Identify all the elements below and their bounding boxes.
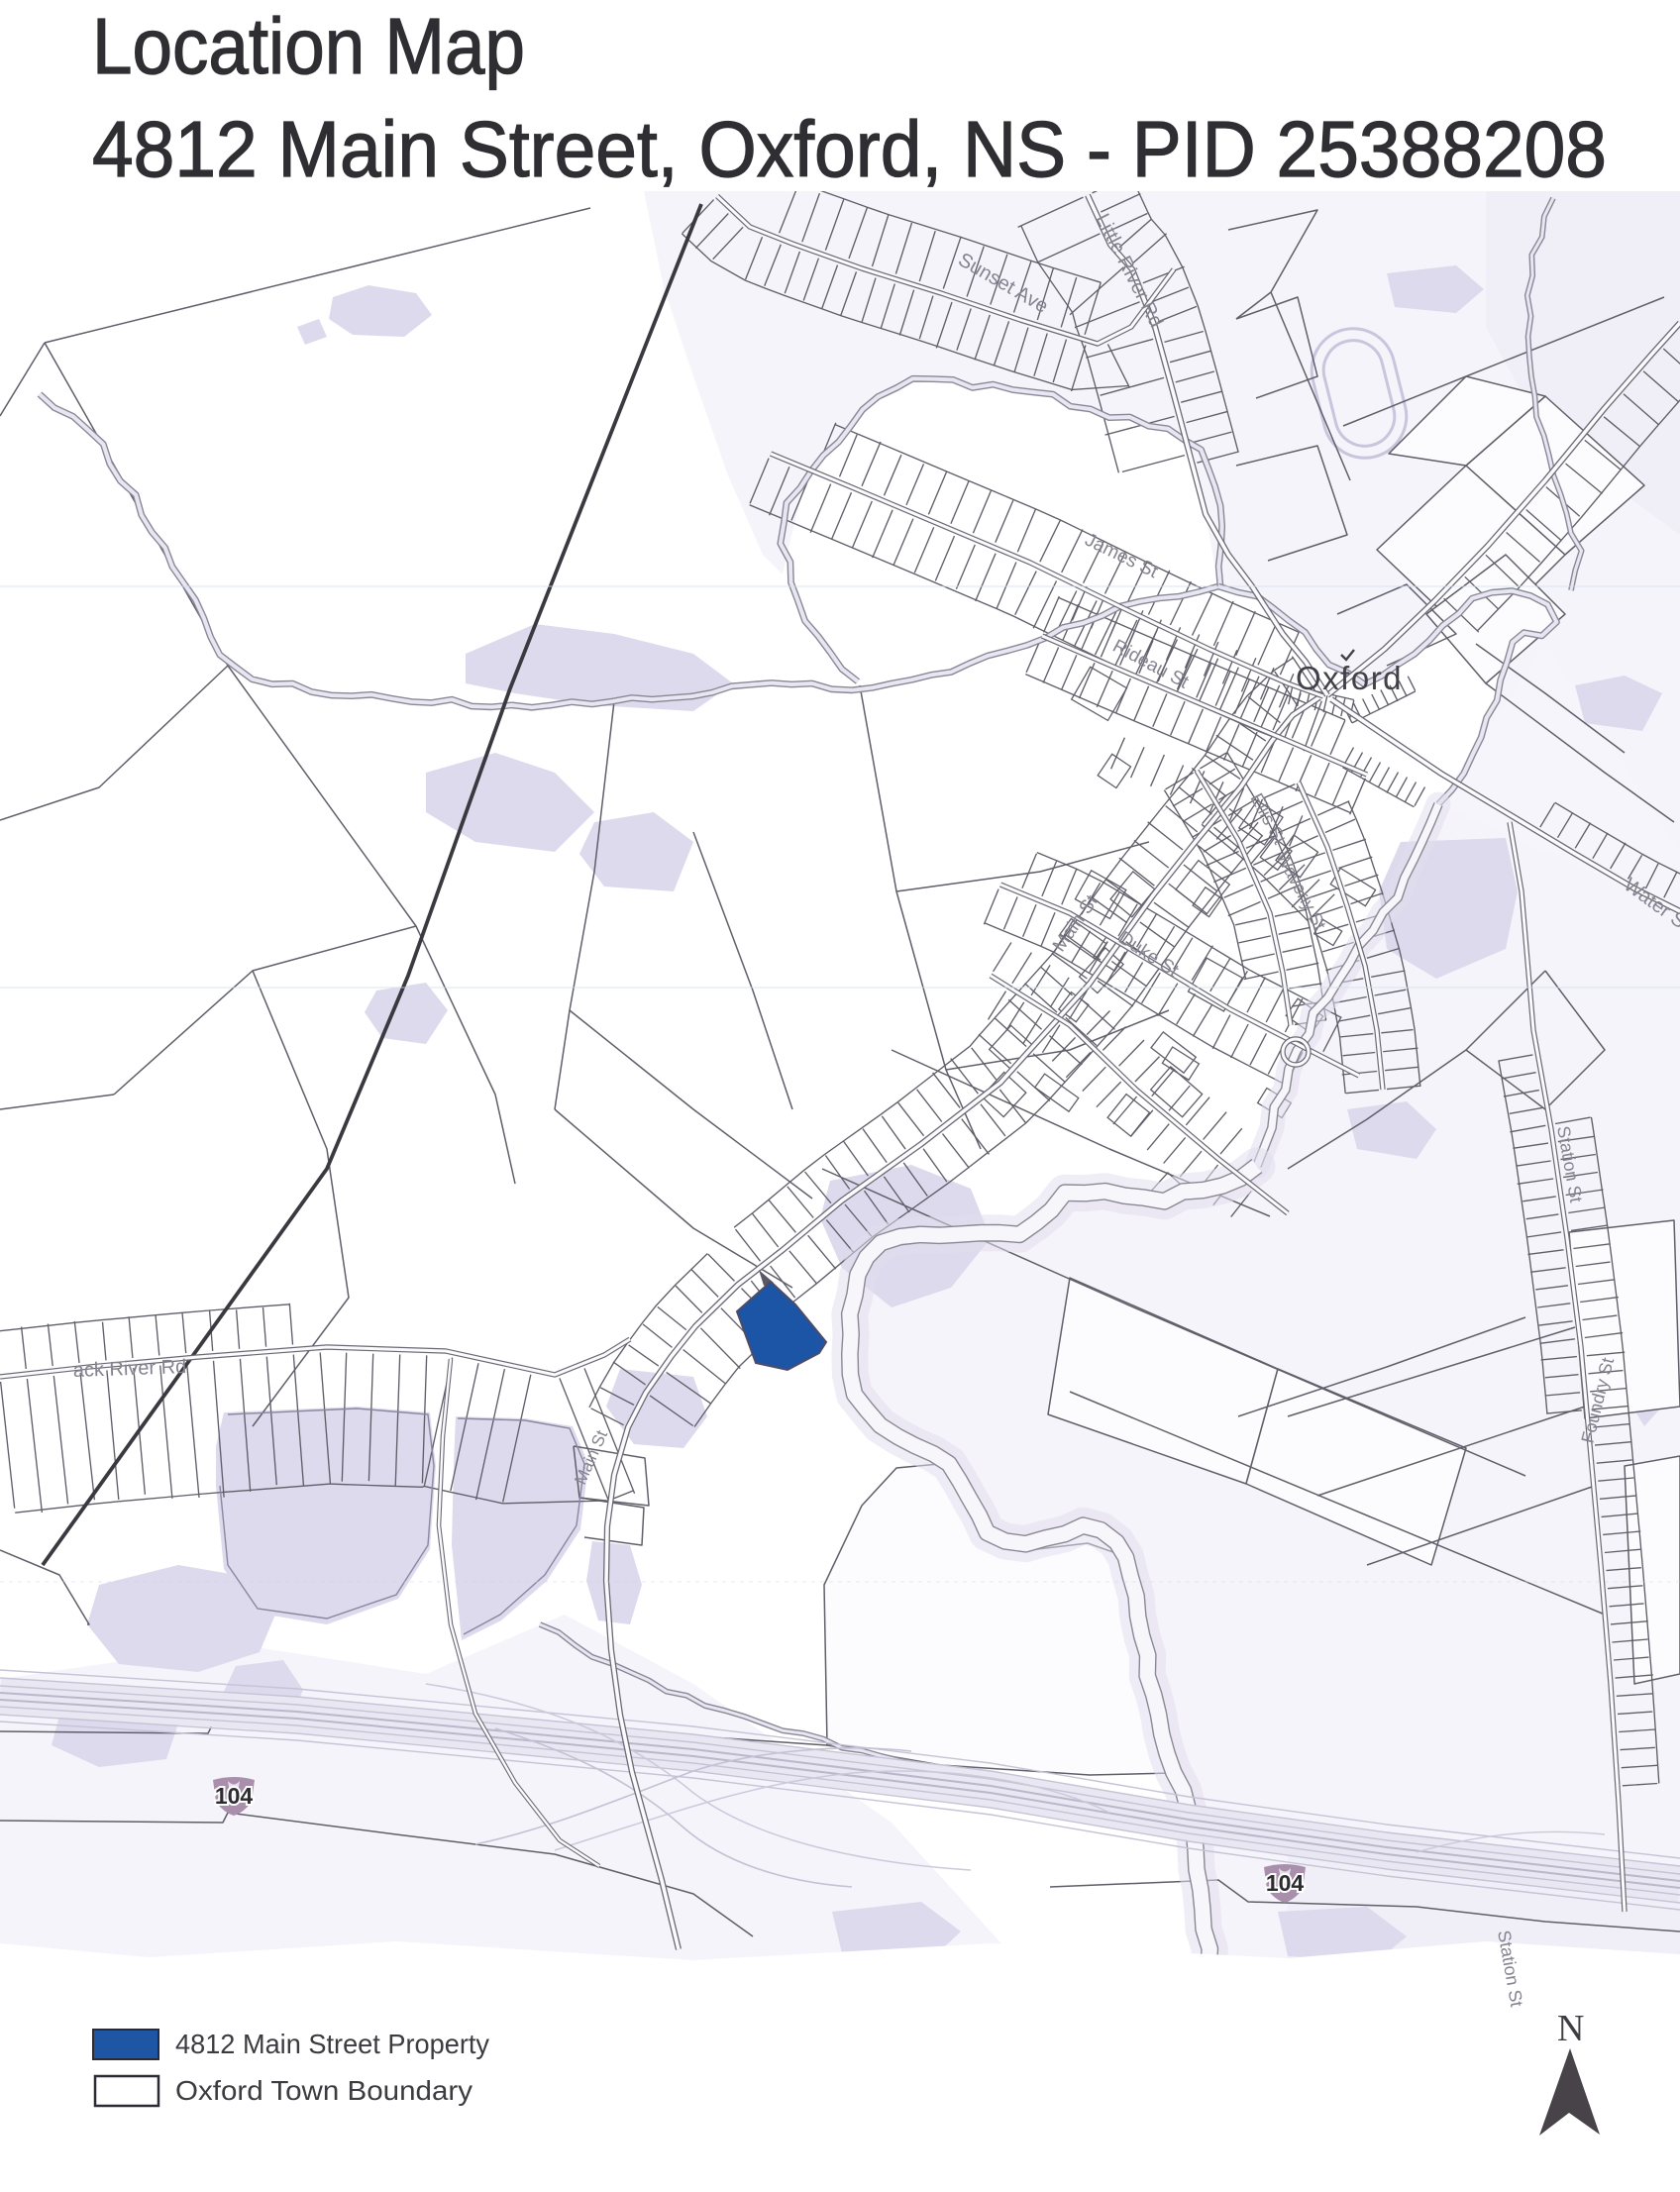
svg-text:104: 104 xyxy=(1266,1870,1305,1896)
svg-text:4812 Main Street Property: 4812 Main Street Property xyxy=(175,2029,489,2059)
svg-text:Oxford: Oxford xyxy=(1296,660,1403,696)
svg-text:ack River Rd: ack River Rd xyxy=(72,1356,186,1382)
svg-text:N: N xyxy=(1557,2008,1584,2049)
svg-text:Location Map: Location Map xyxy=(92,2,525,90)
svg-text:4812 Main Street, Oxford, NS -: 4812 Main Street, Oxford, NS - PID 25388… xyxy=(92,105,1607,193)
svg-text:104: 104 xyxy=(215,1783,254,1809)
svg-text:Oxford Town Boundary: Oxford Town Boundary xyxy=(175,2075,472,2106)
